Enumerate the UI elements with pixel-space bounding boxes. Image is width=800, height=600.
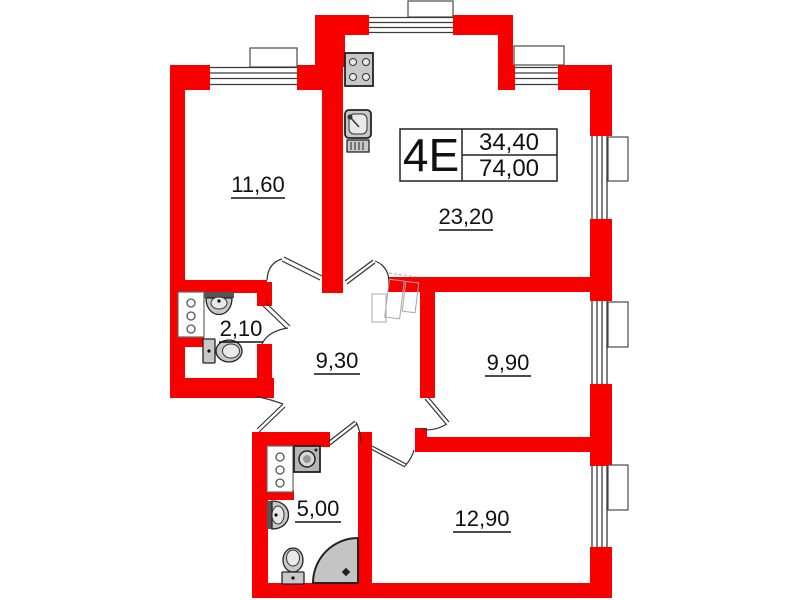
wall-segment bbox=[558, 65, 612, 90]
door-arc-icon bbox=[422, 397, 449, 430]
wall-segment bbox=[257, 344, 272, 380]
door-arc-icon bbox=[328, 421, 361, 445]
stove-icon bbox=[345, 53, 373, 86]
wall-segment bbox=[427, 437, 590, 452]
living-area-value: 34,40 bbox=[479, 129, 539, 156]
hallway-area-label: 9,30 bbox=[316, 348, 359, 373]
door-arc-icon bbox=[267, 257, 322, 280]
wall-segment bbox=[255, 583, 612, 598]
wall-segment bbox=[322, 65, 343, 293]
corner-shower-icon bbox=[313, 538, 358, 583]
title-block: 4E 34,40 74,00 bbox=[400, 129, 557, 182]
washbasin-icon bbox=[204, 292, 234, 315]
kitchen-living-area-label: 23,20 bbox=[438, 204, 493, 229]
wall-segment bbox=[415, 428, 427, 452]
door-arc-icon bbox=[345, 260, 389, 284]
floor-plan-svg: 11,60 23,20 2,10 9,30 9,90 5,00 12,90 4E… bbox=[0, 0, 800, 600]
window-sill bbox=[408, 1, 453, 17]
wall-segment bbox=[590, 219, 612, 301]
wall-segment bbox=[345, 15, 369, 35]
window-icon bbox=[514, 46, 564, 85]
wall-segment bbox=[252, 432, 268, 598]
window-icon bbox=[592, 136, 628, 219]
wall-segment bbox=[170, 280, 267, 293]
wall-segment bbox=[297, 65, 323, 90]
window-sill bbox=[608, 137, 628, 181]
kitchen-sink-icon bbox=[345, 110, 371, 152]
window-icon bbox=[210, 48, 297, 85]
unit-type-label: 4E bbox=[403, 129, 459, 181]
wall-segment bbox=[453, 15, 513, 35]
door-arc-icon bbox=[371, 446, 414, 467]
wall-segment bbox=[170, 65, 210, 90]
door-arc-icon bbox=[262, 303, 290, 344]
wall-segment bbox=[498, 33, 513, 67]
window-icon bbox=[369, 1, 453, 33]
window-icon bbox=[592, 465, 628, 547]
ventilation-shaft-icon bbox=[267, 446, 293, 492]
entrance-door bbox=[256, 397, 285, 432]
wall-segment bbox=[358, 432, 372, 598]
wall-segment bbox=[170, 378, 274, 398]
wall-segment bbox=[590, 88, 612, 136]
wall-segment bbox=[498, 65, 515, 90]
washbasin-icon bbox=[267, 501, 289, 529]
bathroom-large-area-label: 5,00 bbox=[297, 496, 340, 521]
window-sill bbox=[514, 46, 564, 65]
wall-segment bbox=[257, 282, 272, 306]
toilet-icon bbox=[282, 548, 304, 584]
wall-segment bbox=[420, 292, 435, 398]
room-area-label: 12,90 bbox=[454, 506, 509, 531]
window-sill bbox=[608, 465, 628, 510]
wall-segment bbox=[315, 15, 345, 67]
window-sill bbox=[608, 302, 628, 347]
bathroom-small-area-label: 2,10 bbox=[220, 316, 263, 341]
floor-plan: 11,60 23,20 2,10 9,30 9,90 5,00 12,90 4E… bbox=[0, 0, 800, 600]
wall-segment bbox=[177, 337, 204, 347]
total-area-value: 74,00 bbox=[479, 155, 539, 182]
room-area-label: 9,90 bbox=[487, 350, 530, 375]
wall-segment bbox=[590, 384, 612, 466]
walls bbox=[170, 15, 612, 598]
window-sill bbox=[250, 48, 297, 67]
bedroom-area-label: 11,60 bbox=[231, 172, 284, 197]
washing-machine-icon bbox=[294, 446, 320, 472]
ventilation-shaft-icon bbox=[178, 292, 204, 337]
window-icon bbox=[592, 301, 628, 384]
wall-segment bbox=[170, 65, 185, 398]
